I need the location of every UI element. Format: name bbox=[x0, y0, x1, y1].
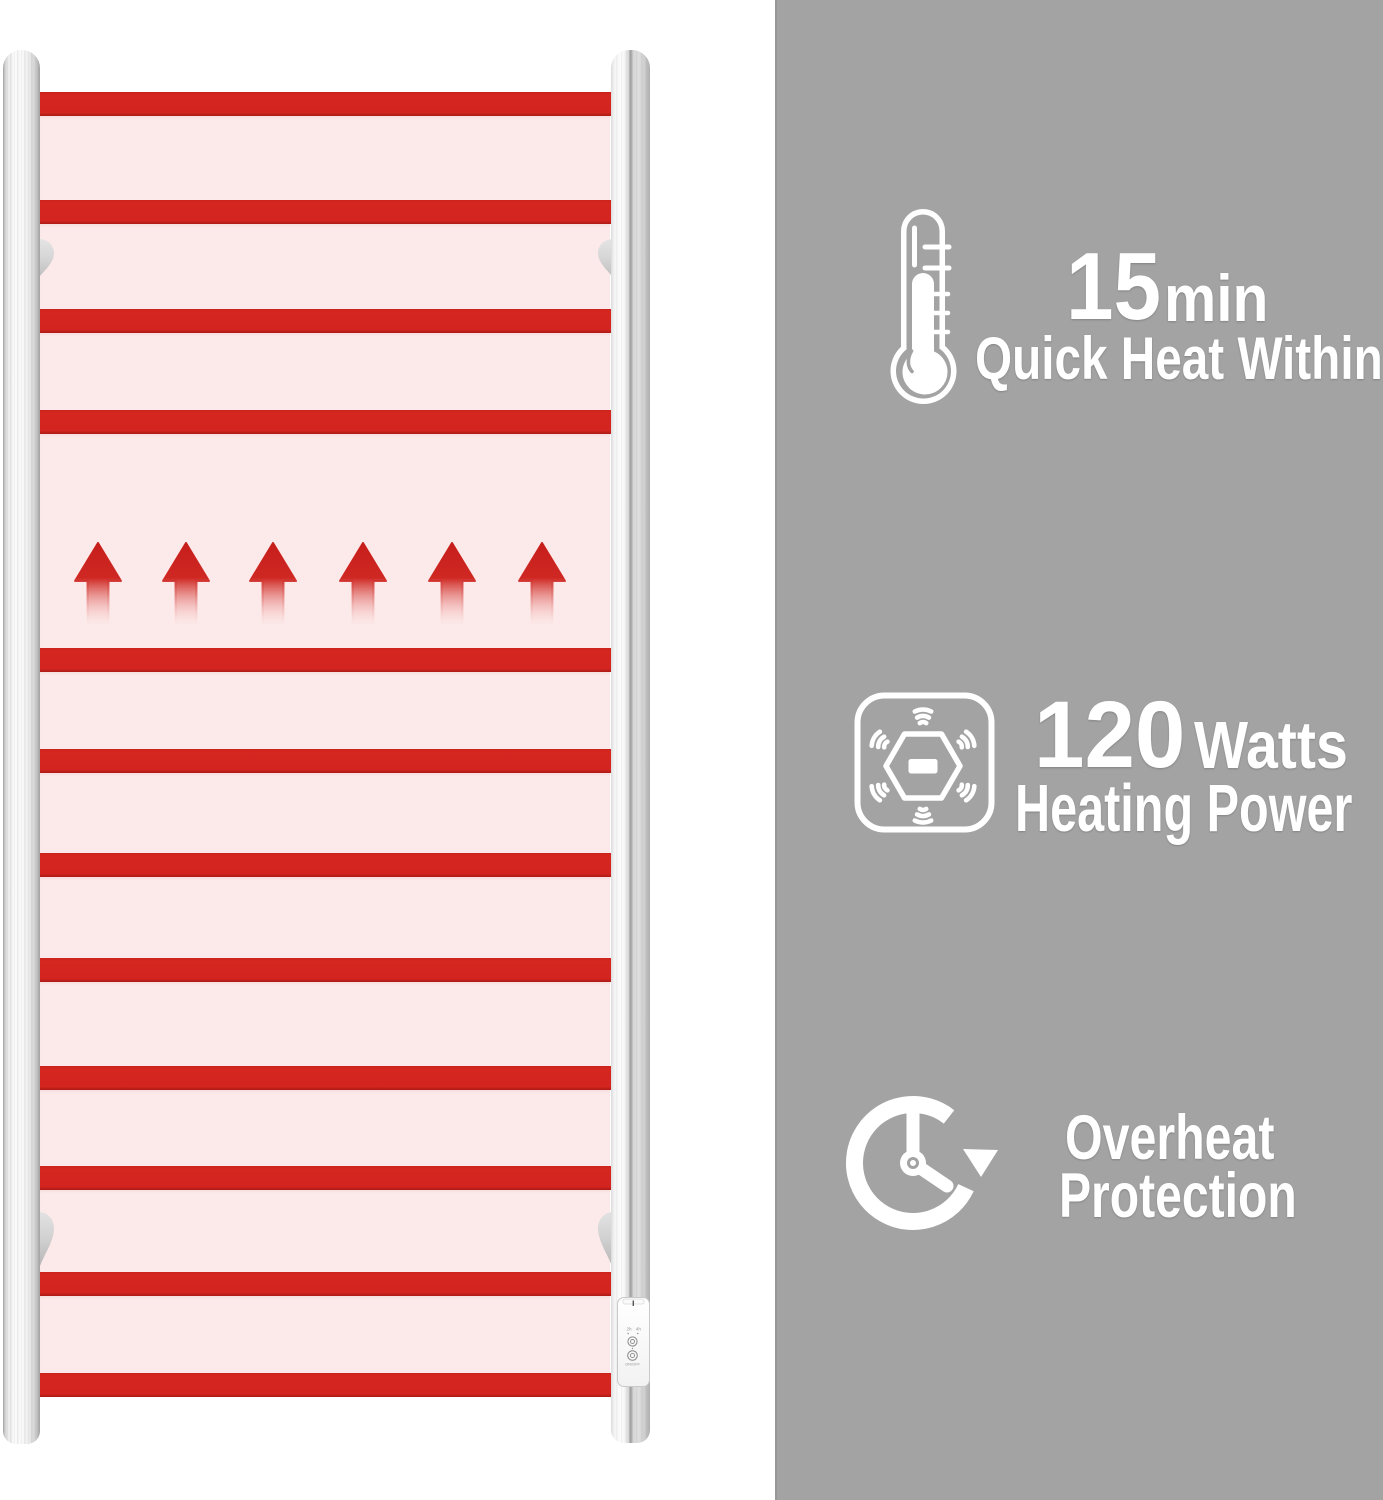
svg-text:4h: 4h bbox=[636, 1327, 642, 1332]
svg-text:ON/OFF: ON/OFF bbox=[625, 1362, 640, 1367]
svg-text:2h: 2h bbox=[627, 1327, 633, 1332]
